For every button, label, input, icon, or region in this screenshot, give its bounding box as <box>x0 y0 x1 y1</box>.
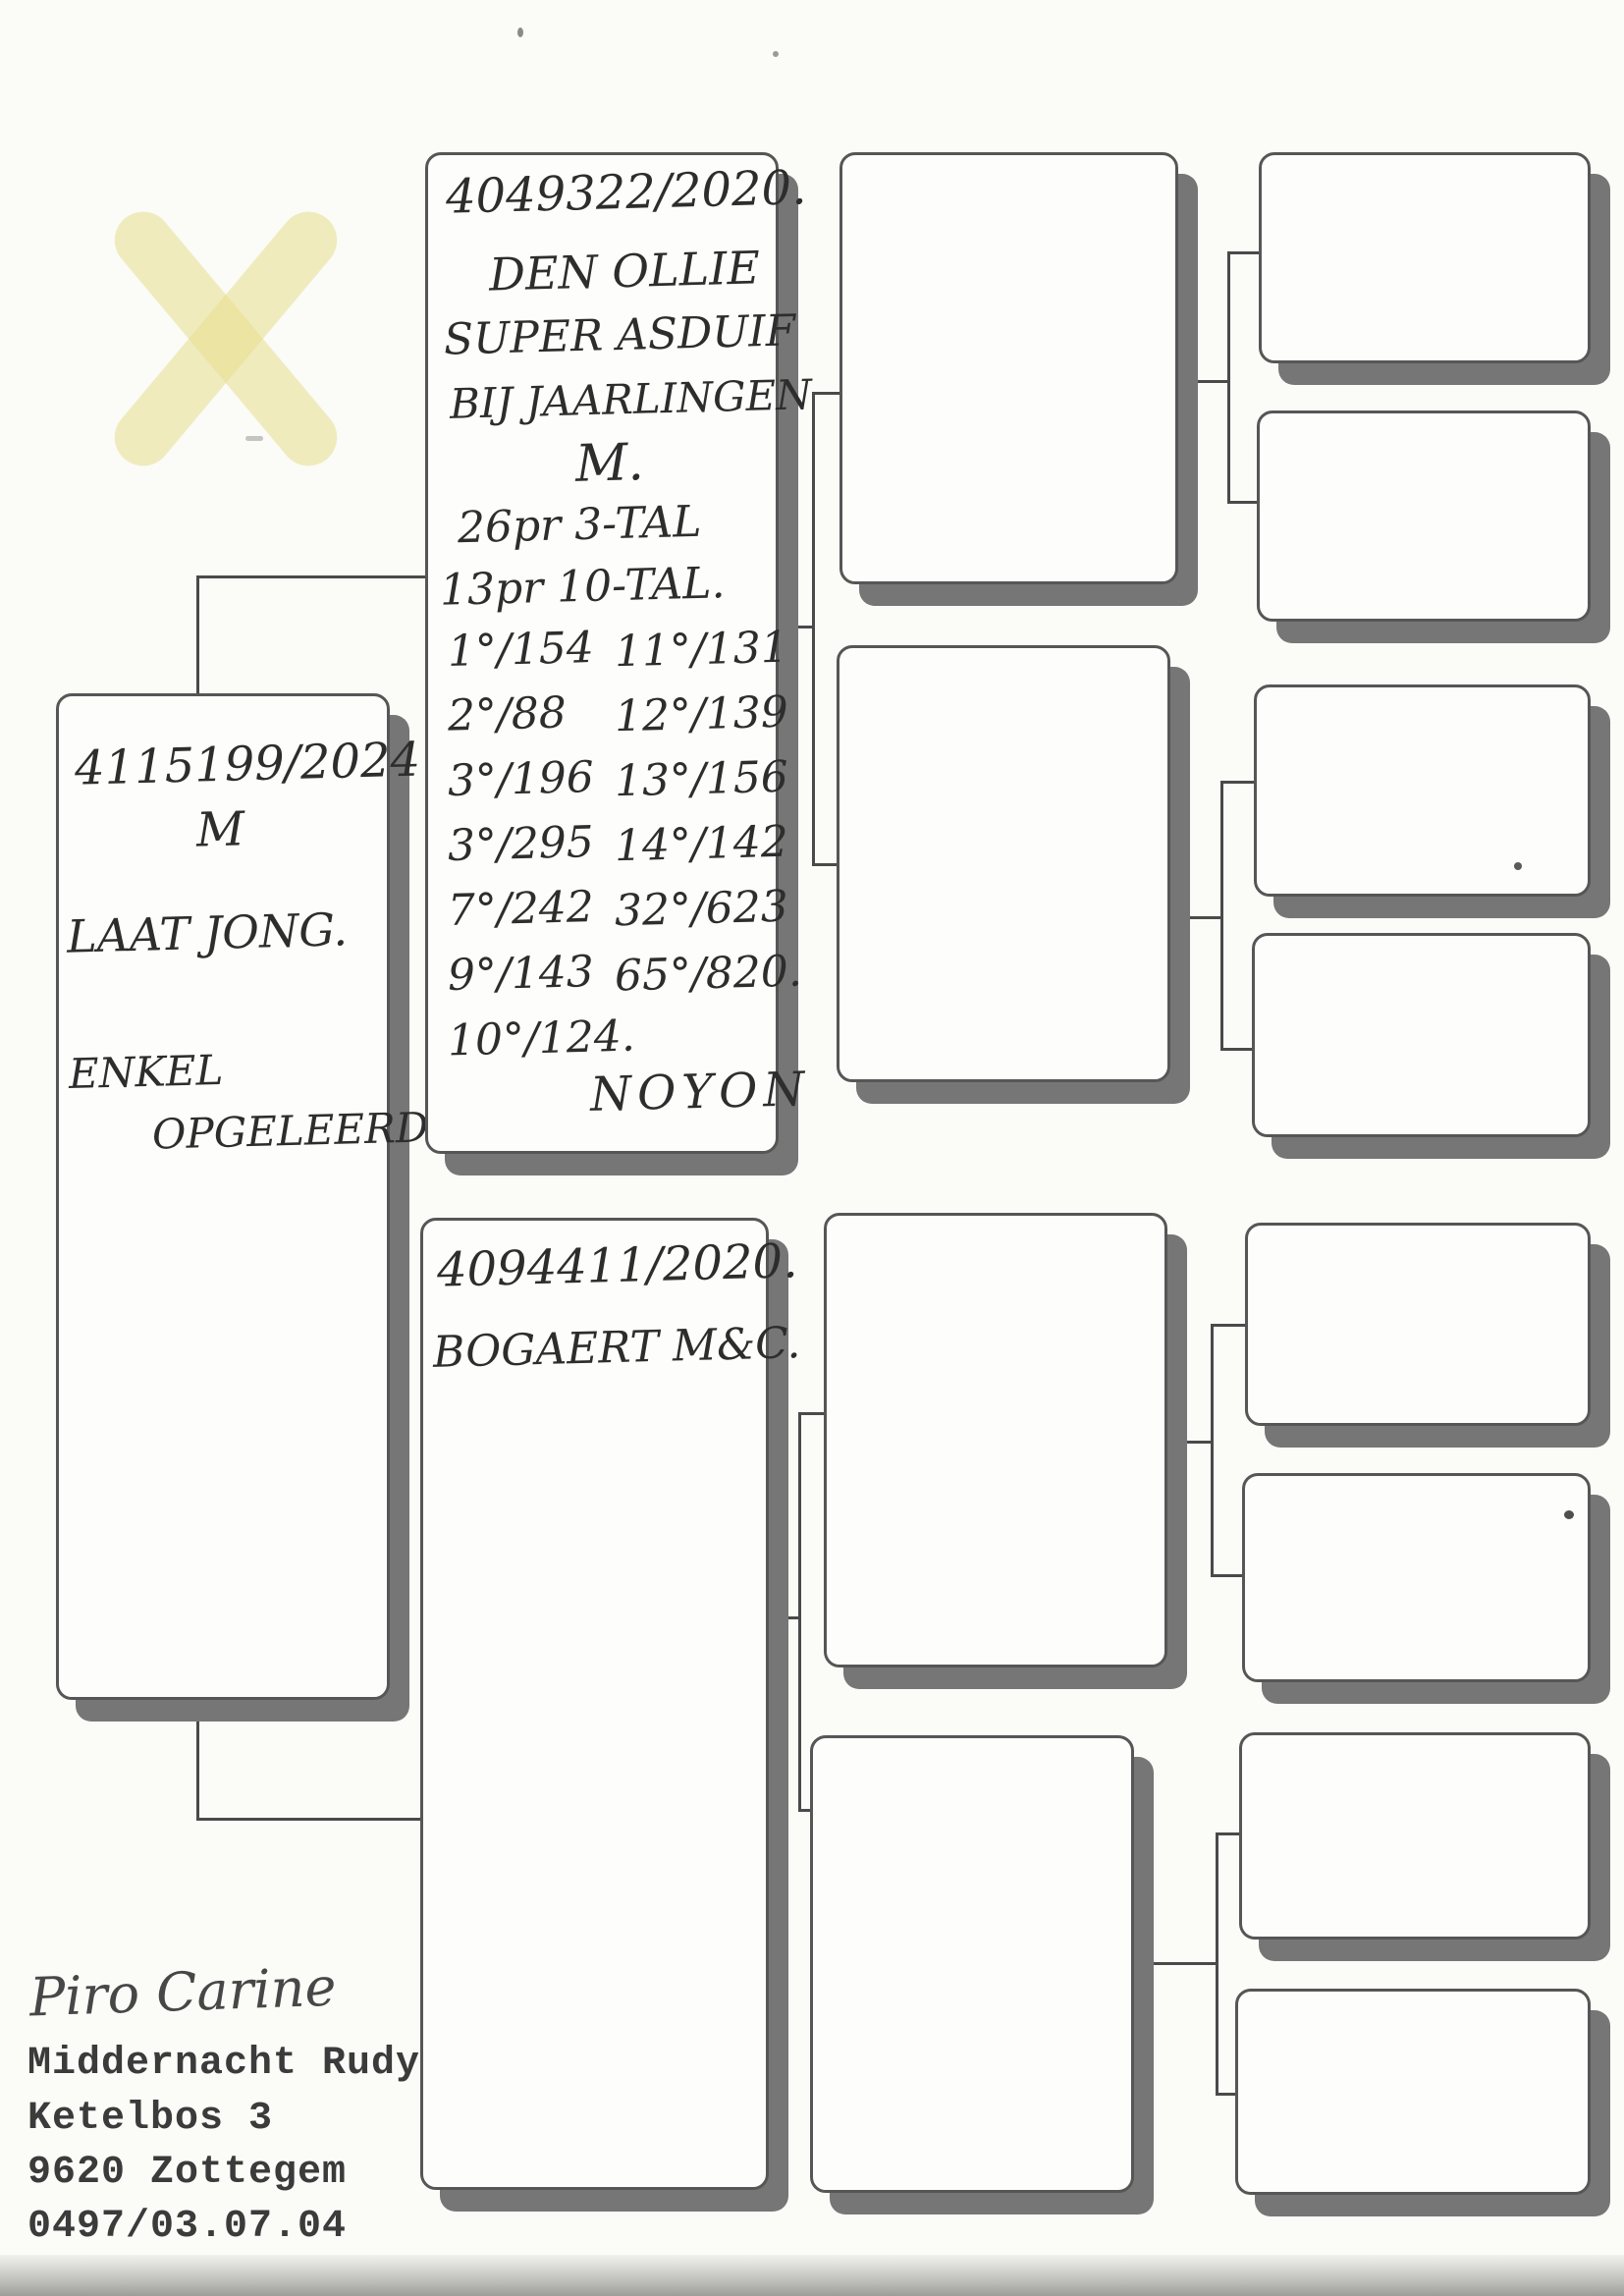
connector-line <box>1176 380 1229 383</box>
result-value: 32°/623 <box>614 886 788 934</box>
owner-street: Ketelbos 3 <box>27 2100 273 2139</box>
connector-line <box>1227 501 1259 504</box>
result-value: 11°/131 <box>614 627 788 675</box>
sire-subtitle-bij-jaarlingen: BIJ JAARLINGEN <box>450 374 813 425</box>
connector-line <box>1220 1048 1254 1051</box>
connector-line <box>1211 1324 1214 1577</box>
result-value: 14°/142 <box>614 821 788 869</box>
child-note-enkel: ENKEL <box>68 1050 223 1095</box>
owner-city: 9620 Zottegem <box>27 2154 347 2193</box>
result-value: 3°/196 <box>447 756 594 803</box>
grandparent-box-1 <box>839 152 1178 584</box>
result-row: 7°/242 32°/623 <box>428 888 776 947</box>
connector-line <box>1132 1962 1218 1965</box>
result-value: 2°/88 <box>447 691 567 738</box>
result-row: 9°/143 65°/820. <box>428 953 776 1011</box>
connector-line <box>1220 781 1223 1051</box>
result-value: 1°/154 <box>447 627 594 674</box>
great-grandparent-box-8 <box>1235 1989 1591 2195</box>
sire-prizes-summary-2: 13pr 10-TAL. <box>439 562 725 613</box>
result-value: 12°/139 <box>614 691 788 739</box>
owner-name: Middernacht Rudy <box>27 2045 420 2084</box>
result-value: 3°/295 <box>447 821 594 868</box>
owner-signature: Piro Carine <box>28 1961 337 2025</box>
result-value: 9°/143 <box>447 951 594 998</box>
result-value: 10°/124. <box>447 1015 635 1064</box>
great-grandparent-box-7 <box>1239 1732 1591 1940</box>
pedigree-scan-page: 4115199/2024. M LAAT JONG. ENKEL OPGELEE… <box>0 0 1624 2296</box>
dam-ring-number: 4094411/2020. <box>436 1237 797 1294</box>
connector-line <box>196 1818 423 1821</box>
child-note-laat-jong: LAAT JONG. <box>66 906 348 958</box>
sire-ring-number: 4049322/2020. <box>445 164 806 221</box>
pedigree-box-child: 4115199/2024. M LAAT JONG. ENKEL OPGELEE… <box>56 693 390 1700</box>
great-grandparent-box-5 <box>1245 1223 1591 1426</box>
result-row: 2°/88 12°/139 <box>428 693 776 752</box>
great-grandparent-box-6 <box>1242 1473 1591 1682</box>
connector-line <box>798 1412 801 1812</box>
scan-speck <box>1514 862 1522 870</box>
great-grandparent-box-1 <box>1259 152 1591 363</box>
scan-speck <box>245 436 263 441</box>
connector-line <box>769 1616 801 1619</box>
grandparent-box-4 <box>810 1735 1134 2193</box>
result-value: 13°/156 <box>614 756 788 804</box>
child-note-opgeleerd: OPGELEERD <box>151 1107 428 1155</box>
result-row: 3°/196 13°/156 <box>428 758 776 817</box>
result-value: 7°/242 <box>447 886 594 933</box>
connector-line <box>196 1700 199 1821</box>
connector-line <box>1211 1574 1244 1577</box>
sire-subtitle-super-asduif: SUPER ASDUIF <box>443 309 795 361</box>
connector-line <box>812 392 841 395</box>
connector-line <box>1220 781 1256 784</box>
connector-line <box>1227 251 1230 504</box>
connector-line <box>196 575 199 696</box>
connector-line <box>812 863 839 866</box>
yellow-highlighter-x-mark <box>118 211 334 466</box>
pedigree-box-dam: 4094411/2020. BOGAERT M&C. <box>420 1218 769 2190</box>
result-row: 3°/295 14°/142 <box>428 823 776 882</box>
connector-line <box>1216 1832 1241 1835</box>
dam-name: BOGAERT M&C. <box>432 1322 800 1375</box>
connector-line <box>1216 2093 1237 2096</box>
connector-line <box>812 392 815 866</box>
scan-speck <box>517 27 523 37</box>
scan-speck <box>773 51 779 57</box>
great-grandparent-box-2 <box>1257 410 1591 622</box>
sire-race-name: NOYON <box>589 1066 811 1119</box>
connector-line <box>1168 916 1222 919</box>
child-sex: M <box>195 805 244 853</box>
owner-phone: 0497/03.07.04 <box>27 2208 347 2247</box>
sire-sex: M. <box>574 437 644 490</box>
child-ring-number: 4115199/2024. <box>74 736 435 793</box>
result-row: 1°/154 11°/131 <box>428 629 776 687</box>
sire-name: DEN OLLIE <box>488 245 760 297</box>
sire-prizes-summary-1: 26pr 3-TAL <box>457 501 701 550</box>
great-grandparent-box-3 <box>1254 684 1591 897</box>
great-grandparent-box-4 <box>1252 933 1591 1137</box>
connector-line <box>1216 1832 1218 2096</box>
grandparent-box-2 <box>837 645 1170 1082</box>
connector-line <box>1211 1324 1247 1327</box>
connector-line <box>1165 1441 1213 1444</box>
grandparent-box-3 <box>824 1213 1167 1667</box>
scan-speck <box>1564 1510 1574 1519</box>
connector-line <box>196 575 425 578</box>
result-value: 65°/820. <box>614 951 802 999</box>
connector-line <box>1227 251 1261 254</box>
connector-line <box>798 1412 826 1415</box>
pedigree-box-sire: 4049322/2020. DEN OLLIE SUPER ASDUIF BIJ… <box>425 152 779 1154</box>
scan-edge-band <box>0 2255 1624 2296</box>
